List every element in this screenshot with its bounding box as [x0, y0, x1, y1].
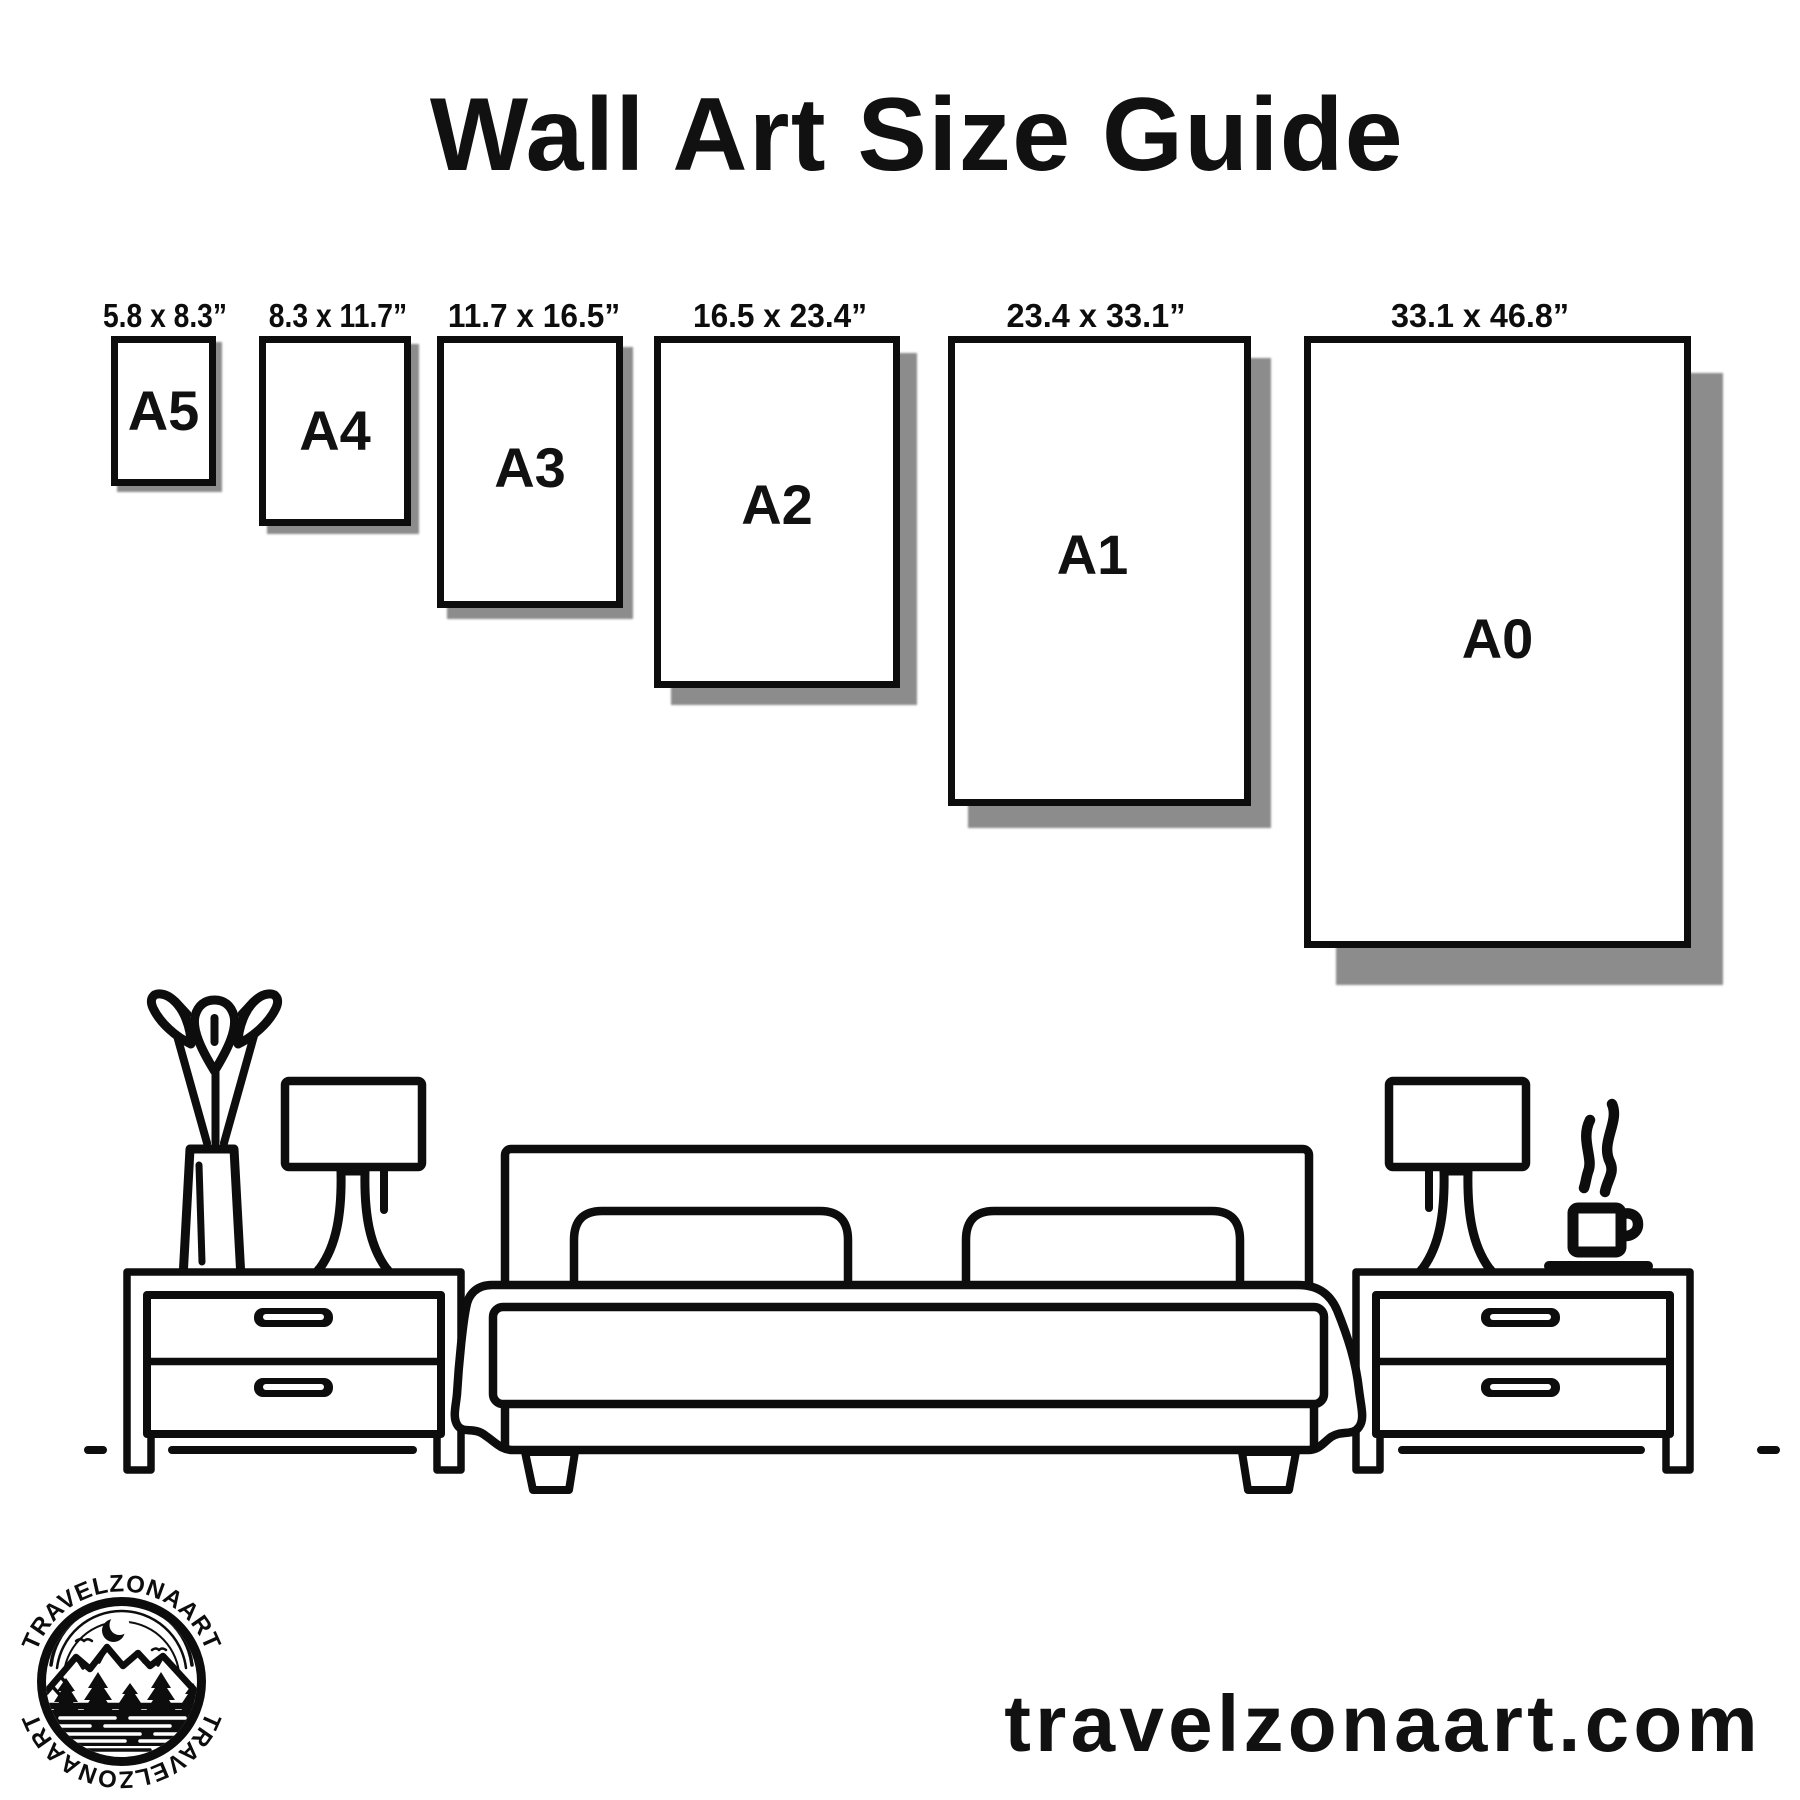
svg-text:•TRAVELZONAART•: •TRAVELZONAART•: [0, 0, 226, 1793]
